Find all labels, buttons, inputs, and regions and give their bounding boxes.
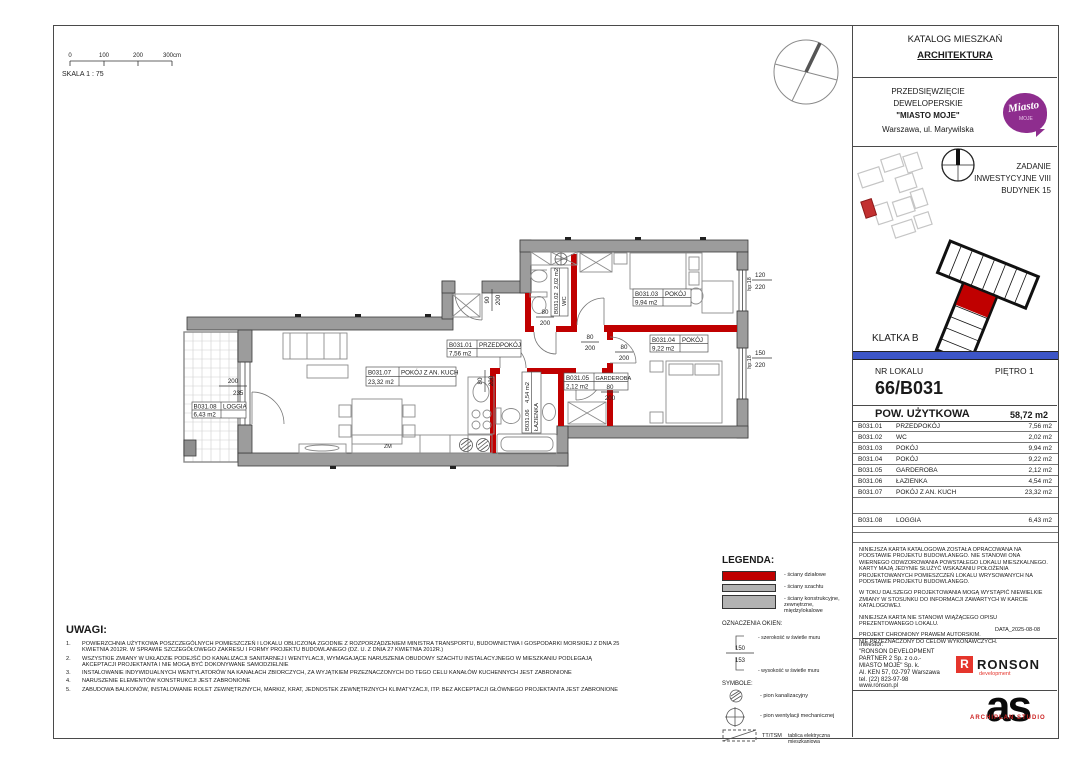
svg-text:9,94 m2: 9,94 m2	[635, 300, 658, 307]
catalog-title-line1: KATALOG MIESZKAŃ	[853, 34, 1057, 45]
area-header-label: POW. UŻYTKOWA	[875, 408, 970, 420]
legend-item3: - ściany konstrukcyjne, zewnętrzne, międ…	[784, 596, 846, 614]
miasto-moje-logo: Miasto MOJE	[1003, 93, 1047, 133]
dim-window2: 150 220 hp:18	[747, 350, 772, 369]
table-row: B031.08LOGGIA6,43 m2	[853, 514, 1058, 527]
svg-text:153: 153	[735, 658, 746, 664]
legend-title: LEGENDA:	[722, 555, 774, 566]
svg-text:200: 200	[585, 345, 596, 352]
label-pokoj-z-an-kuch: B031.07 POKÓJ Z AN. KUCH 23,32 m2	[366, 367, 458, 386]
ronson-logo-text: RONSON	[977, 657, 1040, 672]
ronson-logo-mark: R	[956, 656, 973, 673]
legend-windows-title: OZNACZENIA OKIEN:	[722, 621, 782, 627]
catalog-title-line2: ARCHITEKTURA	[853, 50, 1057, 61]
blue-bar	[853, 351, 1058, 360]
legend-item2: - ściany szachtu	[784, 584, 823, 590]
svg-text:200: 200	[228, 378, 239, 385]
scale-tick-200: 200	[133, 53, 144, 59]
table-row: B031.02WC2,02 m2	[853, 432, 1058, 443]
svg-text:200: 200	[495, 294, 502, 305]
sewage-riser-icon	[460, 439, 490, 452]
svg-text:200: 200	[540, 320, 551, 327]
svg-text:hp:18: hp:18	[747, 277, 753, 291]
svg-text:hp:18: hp:18	[747, 355, 753, 369]
archiplan-caption: ARCHIPLAN STUDIO	[970, 715, 1046, 721]
scale-tick-0: 0	[68, 53, 72, 59]
svg-text:B031.07: B031.07	[368, 370, 392, 377]
svg-text:150: 150	[735, 646, 746, 652]
legend-swatch-partition	[722, 571, 776, 581]
svg-text:B031.05: B031.05	[566, 375, 590, 382]
svg-text:PRZEDPOKÓJ: PRZEDPOKÓJ	[479, 342, 521, 349]
note-item: 2. WSZYSTKIE ZMIANY W UKŁADZIE PODEJŚĆ D…	[66, 656, 706, 669]
building-plan-mini	[855, 200, 1058, 352]
svg-text:80: 80	[542, 309, 549, 316]
dishwasher-label: ZM	[384, 444, 392, 450]
svg-text:6,43 m2: 6,43 m2	[194, 412, 217, 419]
table-row: B031.04POKÓJ9,22 m2	[853, 454, 1058, 465]
notes-title: UWAGI:	[66, 624, 706, 636]
note-item: 3. INSTALOWANIE INDYWIDUALNYCH WENTYLATO…	[66, 670, 706, 676]
disclaimer: NINIEJSZA KARTA KATALOGOWA ZOSTAŁA OPRAC…	[859, 547, 1051, 638]
development-line1: PRZEDSIĘWZIĘCIE	[853, 87, 1003, 96]
legend-symbols-title: SYMBOLE:	[722, 681, 753, 687]
legend-swatch-shaft	[722, 584, 776, 592]
notes: UWAGI: 1. POWIERZCHNIA UŻYTKOWA POSZCZEG…	[66, 624, 706, 695]
legend-sym1: - pion kanalizacyjny	[760, 693, 808, 699]
legend-sym2: - pion wentylacji mechanicznej	[760, 713, 834, 719]
legend-swatch-structural	[722, 595, 776, 609]
label-garderoba: B031.05 GARDEROBA 2,12 m2	[564, 373, 632, 391]
svg-text:2,12 m2: 2,12 m2	[566, 384, 589, 391]
svg-text:GARDEROBA: GARDEROBA	[596, 376, 632, 382]
label-przedp: B031.01 PRZEDPOKÓJ 7,56 m2	[447, 340, 521, 358]
note-item: 4. NARUSZENIE ELEMENTÓW KONSTRUKCJI JEST…	[66, 678, 706, 684]
svg-text:80: 80	[587, 334, 594, 341]
svg-text:POKÓJ Z AN. KUCH: POKÓJ Z AN. KUCH	[401, 370, 458, 377]
tb-sep1	[853, 77, 1057, 78]
disclaimer-date: DATA_2025-08-08	[995, 627, 1040, 633]
svg-text:200: 200	[605, 395, 616, 402]
tb-sep5	[853, 638, 1057, 639]
svg-text:90: 90	[484, 296, 491, 303]
svg-text:4,54 m2: 4,54 m2	[525, 382, 531, 403]
svg-text:150: 150	[755, 350, 766, 357]
ronson-logo-sub: development	[979, 671, 1011, 677]
development-line3: "MIASTO MOJE"	[853, 111, 1003, 120]
area-header-value: 58,72 m2	[960, 410, 1048, 420]
unit-label: NR LOKALU	[875, 366, 923, 376]
table-row-empty	[853, 498, 1058, 514]
note-item: 1. POWIERZCHNIA UŻYTKOWA POSZCZEGÓLNYCH …	[66, 641, 706, 654]
svg-text:80: 80	[607, 384, 614, 391]
legend-item1: - ściany działowe	[784, 572, 826, 578]
svg-text:ŁAZIENKA: ŁAZIENKA	[534, 403, 540, 431]
svg-text:23,32 m2: 23,32 m2	[368, 379, 394, 386]
label-loggia: B031.08 LOGGIA 6,43 m2	[192, 402, 248, 419]
development-line2: DEWELOPERSKIE	[853, 99, 1003, 108]
legend-board-label: tablica elektryczna mieszkaniowa	[788, 733, 850, 745]
dim-loggia-door: 200 235	[219, 378, 247, 397]
scale-tick-300: 300cm	[163, 53, 181, 59]
svg-text:B031.03: B031.03	[635, 291, 659, 298]
svg-text:B031.08: B031.08	[194, 404, 218, 411]
investor: Inwestor: "RONSON DEVELOPMENT PARTNER 2 …	[859, 642, 959, 690]
svg-text:WC: WC	[562, 296, 568, 306]
svg-text:POKÓJ: POKÓJ	[682, 337, 703, 344]
svg-text:220: 220	[755, 362, 766, 369]
label-pokoj03: B031.03 POKÓJ 9,94 m2	[633, 289, 691, 307]
task-line1: ZADANIE	[903, 162, 1051, 171]
table-row: B031.06ŁAZIENKA4,54 m2	[853, 476, 1058, 487]
staircase-label: KLATKA B	[872, 333, 919, 344]
table-row-empty	[853, 533, 1058, 543]
scale-label: SKALA 1 : 75	[62, 71, 104, 78]
svg-text:7,56 m2: 7,56 m2	[449, 351, 472, 358]
task-line2: INWESTYCYJNE VIII	[903, 174, 1051, 183]
table-row: B031.07POKÓJ Z AN. KUCH23,32 m2	[853, 487, 1058, 498]
legend-window-diagram: 150 153 - szerokość w świetle muru - wys…	[720, 631, 848, 677]
legend: LEGENDA: - ściany działowe - ściany szac…	[718, 555, 850, 738]
note-item: 5. ZABUDOWA BALKONÓW, INSTALOWANIE ROLET…	[66, 687, 706, 693]
archiplan-mark: as	[986, 682, 1029, 732]
disclaimer-p1: NINIEJSZA KARTA KATALOGOWA ZOSTAŁA OPRAC…	[859, 547, 1051, 585]
tb-sep3	[853, 405, 1057, 406]
svg-text:120: 120	[755, 272, 766, 279]
label-lazienka: B031.06 4,54 m2 ŁAZIENKA	[522, 372, 541, 433]
catalog-sheet: 0 100 200 300cm SKALA 1 : 75	[0, 0, 1087, 768]
table-row: B031.01PRZEDPOKÓJ7,56 m2	[853, 421, 1058, 432]
development-line4: Warszawa, ul. Marywilska	[853, 125, 1003, 134]
svg-text:80: 80	[621, 344, 628, 351]
svg-text:B031.06: B031.06	[525, 409, 531, 431]
floor-label: PIĘTRO 1	[995, 366, 1034, 376]
unit-number: 66/B031	[875, 378, 943, 399]
legend-board-code: TT/TSM	[762, 733, 782, 739]
svg-text:80: 80	[477, 377, 484, 384]
svg-text:200: 200	[488, 375, 495, 386]
logo-tail	[1036, 129, 1045, 137]
svg-text:B031.01: B031.01	[449, 342, 473, 349]
task-line3: BUDYNEK 15	[903, 186, 1051, 195]
svg-text:B031.02: B031.02	[554, 292, 560, 314]
label-pokoj04: B031.04 POKÓJ 9,22 m2	[650, 335, 708, 353]
loggia-pillar	[184, 440, 196, 456]
north-arrow-icon	[774, 40, 838, 104]
ronson-logo: R RONSON development	[956, 654, 1056, 684]
svg-text:- szerokość w świetle muru: - szerokość w świetle muru	[758, 635, 820, 641]
scale-tick-100: 100	[99, 53, 110, 59]
disclaimer-p3: NINIEJSZA KARTA NIE STANOWI WIĄŻĄCEGO OP…	[859, 615, 1051, 628]
electrical-board-legend-icon	[722, 729, 758, 743]
archiplan-logo: as ARCHIPLAN STUDIO	[960, 690, 1055, 736]
mech-vent-riser-icon	[555, 253, 567, 265]
table-row: B031.05GARDEROBA2,12 m2	[853, 465, 1058, 476]
svg-text:- wysokość w świetle muru: - wysokość w świetle muru	[758, 668, 820, 674]
label-wc: B031.02 2,02 m2 WC	[551, 268, 568, 316]
svg-text:200: 200	[619, 355, 630, 362]
svg-text:POKÓJ: POKÓJ	[665, 291, 686, 298]
svg-text:220: 220	[755, 284, 766, 291]
mech-vent-legend-icon	[724, 706, 746, 728]
svg-text:B031.04: B031.04	[652, 337, 676, 344]
svg-text:2,02 m2: 2,02 m2	[554, 268, 560, 289]
table-row: B031.03POKÓJ9,94 m2	[853, 443, 1058, 454]
dim-window1: 120 220 hp:18	[747, 272, 772, 291]
svg-text:235: 235	[233, 390, 244, 397]
disclaimer-p2: W TOKU DALSZEGO PROJEKTOWANIA MOGĄ WYSTĄ…	[859, 590, 1051, 609]
scale-bar	[70, 61, 172, 66]
svg-text:9,22 m2: 9,22 m2	[652, 346, 675, 353]
sewage-riser-legend-icon	[728, 688, 744, 704]
dim-room03-door: 80 200	[581, 334, 599, 352]
svg-text:LOGGIA: LOGGIA	[223, 404, 248, 411]
